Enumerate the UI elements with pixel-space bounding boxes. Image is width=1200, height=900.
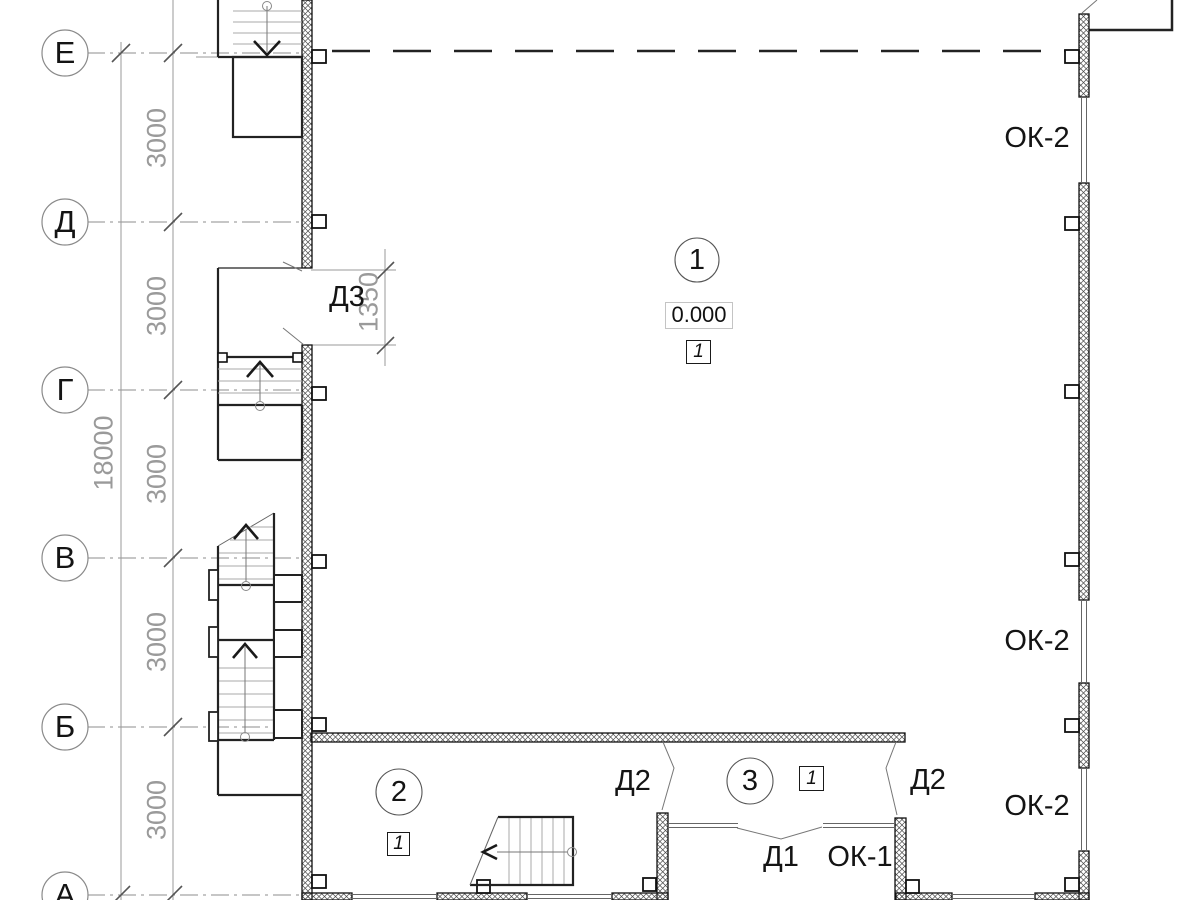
window-label-ok2-mid: ОК-2	[991, 625, 1083, 657]
stair-top	[218, 0, 302, 137]
floor-plan: Е Д Г В Б А 3000 3000 3000 3000 3000 180…	[0, 0, 1200, 900]
walls	[302, 0, 1089, 900]
leader-lines	[283, 262, 897, 839]
room-1-number: 1	[672, 245, 722, 276]
top-right-leader	[1082, 0, 1097, 13]
room-3-finish-mark: 1	[799, 766, 824, 791]
axis-label-a: А	[40, 878, 90, 900]
room-2-number: 2	[374, 777, 424, 808]
axis-label-b: Б	[40, 710, 90, 744]
window-glazing	[352, 97, 1087, 899]
door-label-d2-right: Д2	[897, 764, 959, 796]
room-1-finish-mark: 1	[686, 340, 711, 364]
dim-span-3: 3000	[142, 444, 173, 504]
top-right-structure	[1089, 0, 1172, 30]
room-3-number: 3	[725, 766, 775, 797]
stair-room2	[470, 817, 577, 885]
stair-lower	[209, 513, 302, 795]
stair-mid	[218, 268, 302, 460]
door-label-d2-left: Д2	[602, 765, 664, 797]
dim-span-2: 3000	[142, 276, 173, 336]
room-2-finish-mark: 1	[387, 832, 410, 856]
window-label-ok2-top: ОК-2	[991, 122, 1083, 154]
dim-span-4: 3000	[142, 612, 173, 672]
window-label-ok2-bot: ОК-2	[991, 790, 1083, 822]
window-label-ok1: ОК-1	[815, 841, 905, 873]
door-label-d1: Д1	[753, 841, 809, 873]
wall-tabs	[312, 50, 1079, 893]
level-mark: 0.000	[665, 302, 733, 329]
door-label-d3: Д3	[316, 281, 378, 313]
axis-label-g: Г	[40, 373, 90, 407]
dim-span-5: 3000	[142, 780, 173, 840]
axis-label-e: Е	[40, 36, 90, 70]
axis-label-v: В	[40, 541, 90, 575]
axis-label-d: Д	[40, 205, 90, 239]
axis-bubbles	[42, 30, 88, 900]
dim-span-1: 3000	[142, 108, 173, 168]
dim-total: 18000	[89, 415, 120, 490]
